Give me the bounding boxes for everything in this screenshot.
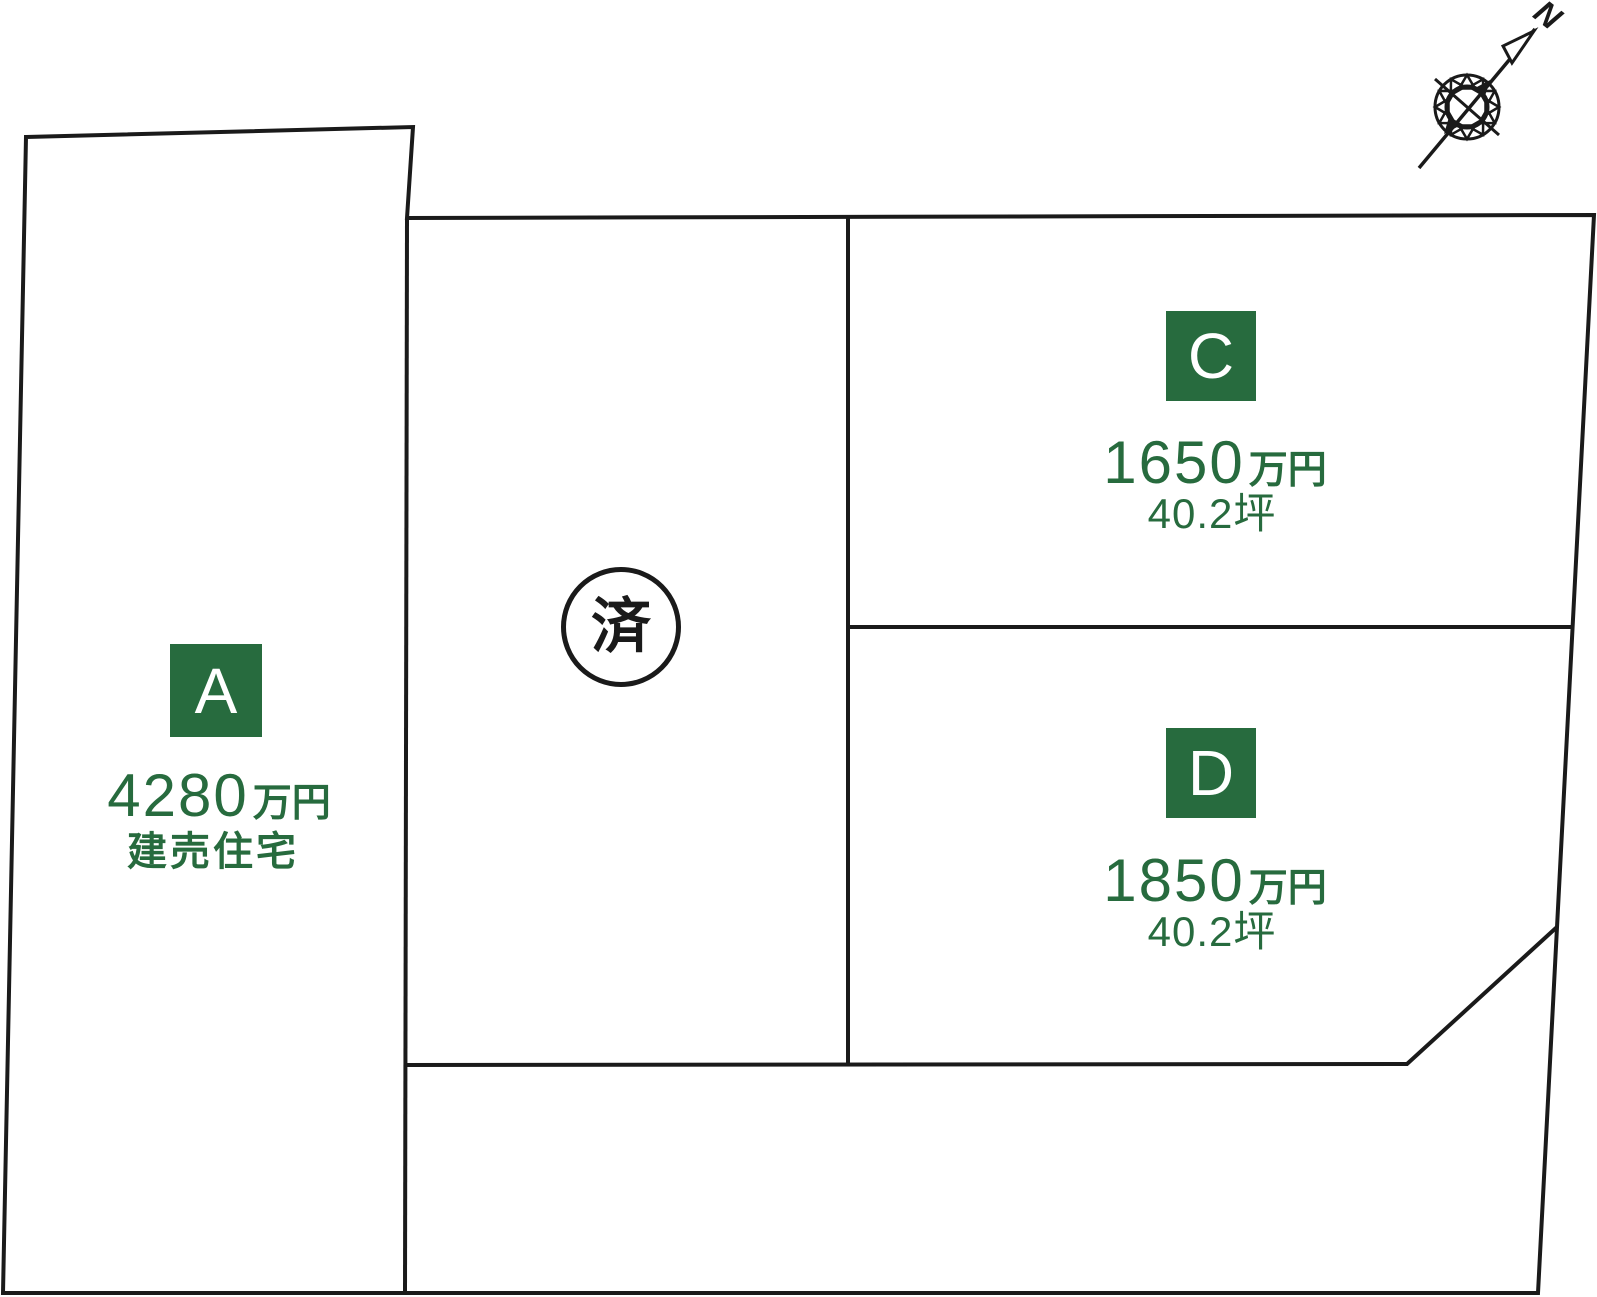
lot-a-price-number: 4280 [107,766,248,826]
lot-a-badge: A [170,644,262,737]
lot-a-price: 4280 万円 [69,766,369,826]
lot-d-area: 40.2坪 [1062,911,1362,953]
lot-d-price-unit: 万円 [1249,869,1327,908]
lot-d-badge: D [1166,728,1256,818]
lot-d-price-number: 1850 [1103,851,1244,911]
compass-icon [1419,29,1535,168]
lot-c-area: 40.2坪 [1062,493,1362,535]
lot-c-price-number: 1650 [1103,433,1244,493]
lot-a-price-unit: 万円 [253,784,331,823]
lot-c-badge: C [1166,311,1256,401]
lot-a-right-boundary [405,218,407,1293]
lot-map: N A 4280 万円 建売住宅 済 C 1650 万円 40.2坪 D 185… [0,0,1597,1297]
lot-d-price: 1850 万円 [1065,851,1365,911]
lot-c-price: 1650 万円 [1065,433,1365,493]
lot-c-price-unit: 万円 [1249,451,1327,490]
road-boundary [405,927,1557,1065]
sold-status-label: 済 [591,597,651,657]
sold-status-badge: 済 [561,567,681,687]
lot-a-note: 建売住宅 [63,832,363,872]
compass-arrow-pennant [1503,31,1534,63]
